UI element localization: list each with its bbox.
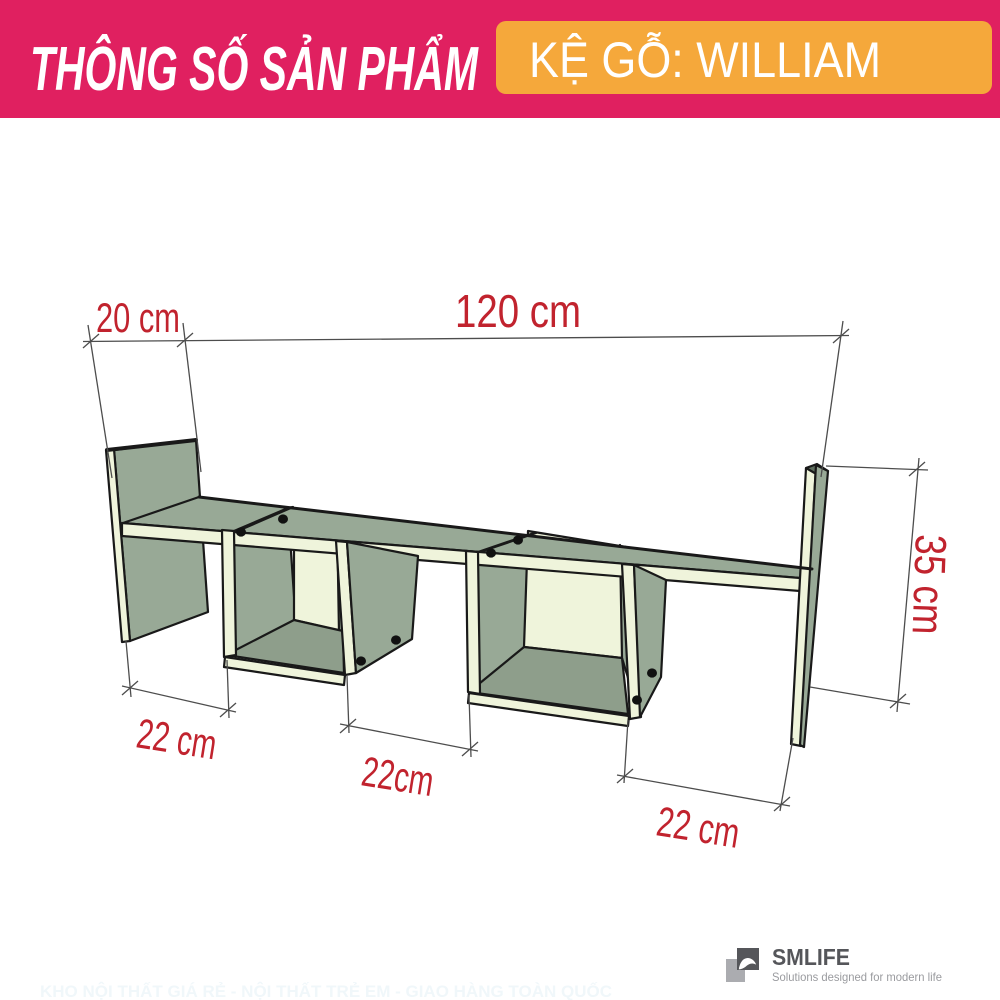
svg-text:22 cm: 22 cm <box>654 797 743 856</box>
svg-text:SMLIFE: SMLIFE <box>772 944 850 970</box>
svg-text:20 cm: 20 cm <box>96 294 180 341</box>
svg-text:22cm: 22cm <box>359 747 437 805</box>
svg-text:120 cm: 120 cm <box>455 285 581 337</box>
svg-text:THÔNG SỐ SẢN PHẨM: THÔNG SỐ SẢN PHẨM <box>30 35 479 104</box>
svg-text:35 cm: 35 cm <box>903 534 955 636</box>
svg-text:Solutions designed for modern: Solutions designed for modern life <box>772 970 942 984</box>
svg-text:22 cm: 22 cm <box>134 709 220 768</box>
svg-text:KỆ GỖ: WILLIAM: KỆ GỖ: WILLIAM <box>529 32 881 88</box>
svg-text:KHO NỘI THẤT GIÁ RẺ - NỘI THẤT: KHO NỘI THẤT GIÁ RẺ - NỘI THẤT TRẺ EM - … <box>40 981 612 1000</box>
